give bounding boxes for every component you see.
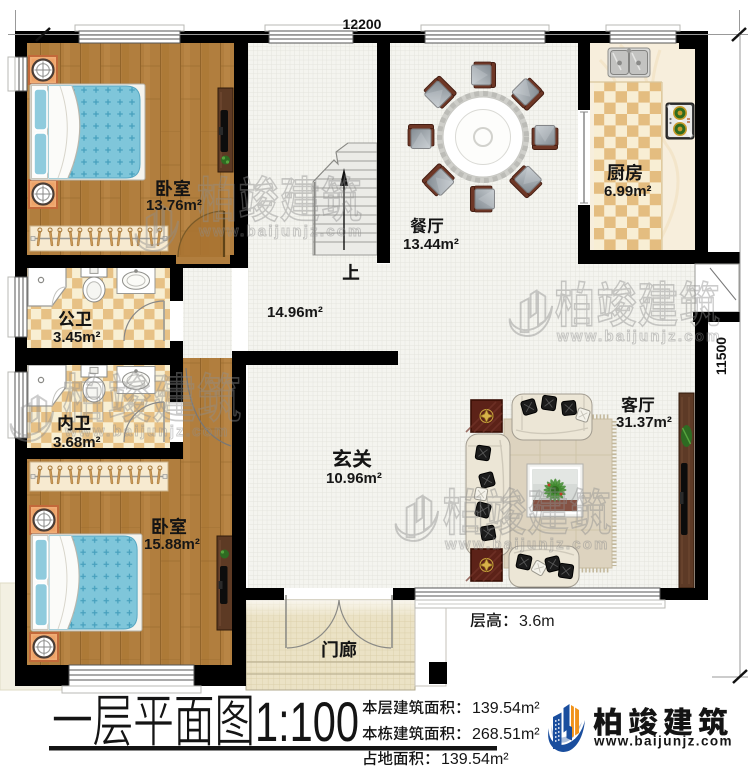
svg-text:139.54m²: 139.54m² <box>472 700 540 717</box>
svg-text:3.68m²: 3.68m² <box>53 434 101 451</box>
svg-text:268.51m²: 268.51m² <box>472 726 540 743</box>
svg-text:3.6m: 3.6m <box>519 613 555 630</box>
svg-text:13.44m²: 13.44m² <box>403 236 459 253</box>
svg-text:14.96m²: 14.96m² <box>267 304 323 321</box>
svg-text:139.54m²: 139.54m² <box>441 751 509 767</box>
svg-text:31.37m²: 31.37m² <box>616 414 672 431</box>
svg-text:www.baijunjz.com: www.baijunjz.com <box>593 734 733 749</box>
svg-text:www.baijunjz.com: www.baijunjz.com <box>198 223 364 240</box>
svg-text:1:100: 1:100 <box>255 690 359 753</box>
svg-text:6.99m²: 6.99m² <box>604 183 652 200</box>
svg-text:15.88m²: 15.88m² <box>144 536 200 553</box>
svg-text:www.baijunjz.com: www.baijunjz.com <box>556 328 722 345</box>
svg-text:10.96m²: 10.96m² <box>326 470 382 487</box>
svg-text:12200: 12200 <box>343 16 382 32</box>
svg-text:13.76m²: 13.76m² <box>146 197 202 214</box>
svg-text:www.baijunjz.com: www.baijunjz.com <box>444 536 610 553</box>
svg-text:3.45m²: 3.45m² <box>53 329 101 346</box>
